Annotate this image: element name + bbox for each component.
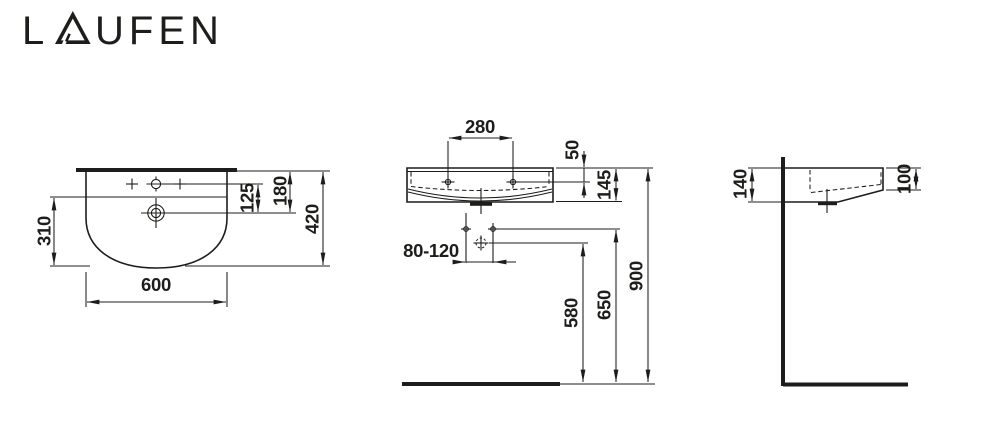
dim-label-180: 180 <box>270 176 291 206</box>
plan-drain-hole <box>141 198 171 228</box>
dim-label-145: 145 <box>594 170 615 200</box>
supply-connection-cross <box>474 236 489 251</box>
dim-label-310: 310 <box>34 216 55 246</box>
dim-depth-at-wall-140: 140 <box>730 168 783 202</box>
front-inner-dash-bottom <box>411 187 549 191</box>
dim-label-100: 100 <box>894 164 915 194</box>
front-hole-right <box>507 176 520 189</box>
dim-label-125: 125 <box>237 183 258 213</box>
dim-front-edge-height-100: 100 <box>886 164 921 194</box>
dim-front-height-145: 145 <box>556 169 622 202</box>
dim-label-600: 600 <box>141 274 171 295</box>
plan-view: 310 600 420 125 18 <box>34 170 330 307</box>
dim-fixing-height-650: 650 <box>594 230 616 382</box>
dim-rim-to-hole-50: 50 <box>562 140 584 198</box>
side-inner-dash-bottom <box>811 185 881 193</box>
dim-label-280: 280 <box>465 116 495 137</box>
dim-outlet-height-580: 580 <box>561 244 583 382</box>
dim-label-420: 420 <box>302 204 323 234</box>
dim-label-650: 650 <box>594 290 615 320</box>
front-hole-left <box>442 176 455 189</box>
dimension-drawing-canvas: L UFEN <box>0 0 1000 429</box>
dim-label-140: 140 <box>730 169 751 199</box>
dim-edge-to-drain-180: 180 <box>270 172 291 212</box>
side-basin-profile <box>785 168 883 202</box>
dim-label-580: 580 <box>561 298 582 328</box>
dim-label-900: 900 <box>626 261 647 291</box>
dim-bowl-depth-310: 310 <box>34 198 90 266</box>
fixing-hole-left <box>461 213 471 263</box>
logo-text-ufen: UFEN <box>95 9 224 53</box>
logo-letter-a <box>58 15 88 46</box>
dim-label-80-120: 80-120 <box>403 240 459 261</box>
logo-text-l: L <box>22 9 49 53</box>
dim-label-50: 50 <box>562 140 583 160</box>
plan-tap-position-left-mark <box>126 179 138 190</box>
front-view: 280 50 145 <box>402 116 655 384</box>
technical-drawing-page: L UFEN <box>0 0 1000 429</box>
dim-basin-width-600: 600 <box>86 272 227 307</box>
dim-rim-height-900: 900 <box>626 169 648 382</box>
side-view: 140 100 <box>730 157 921 386</box>
laufen-logo: L UFEN <box>22 9 224 53</box>
